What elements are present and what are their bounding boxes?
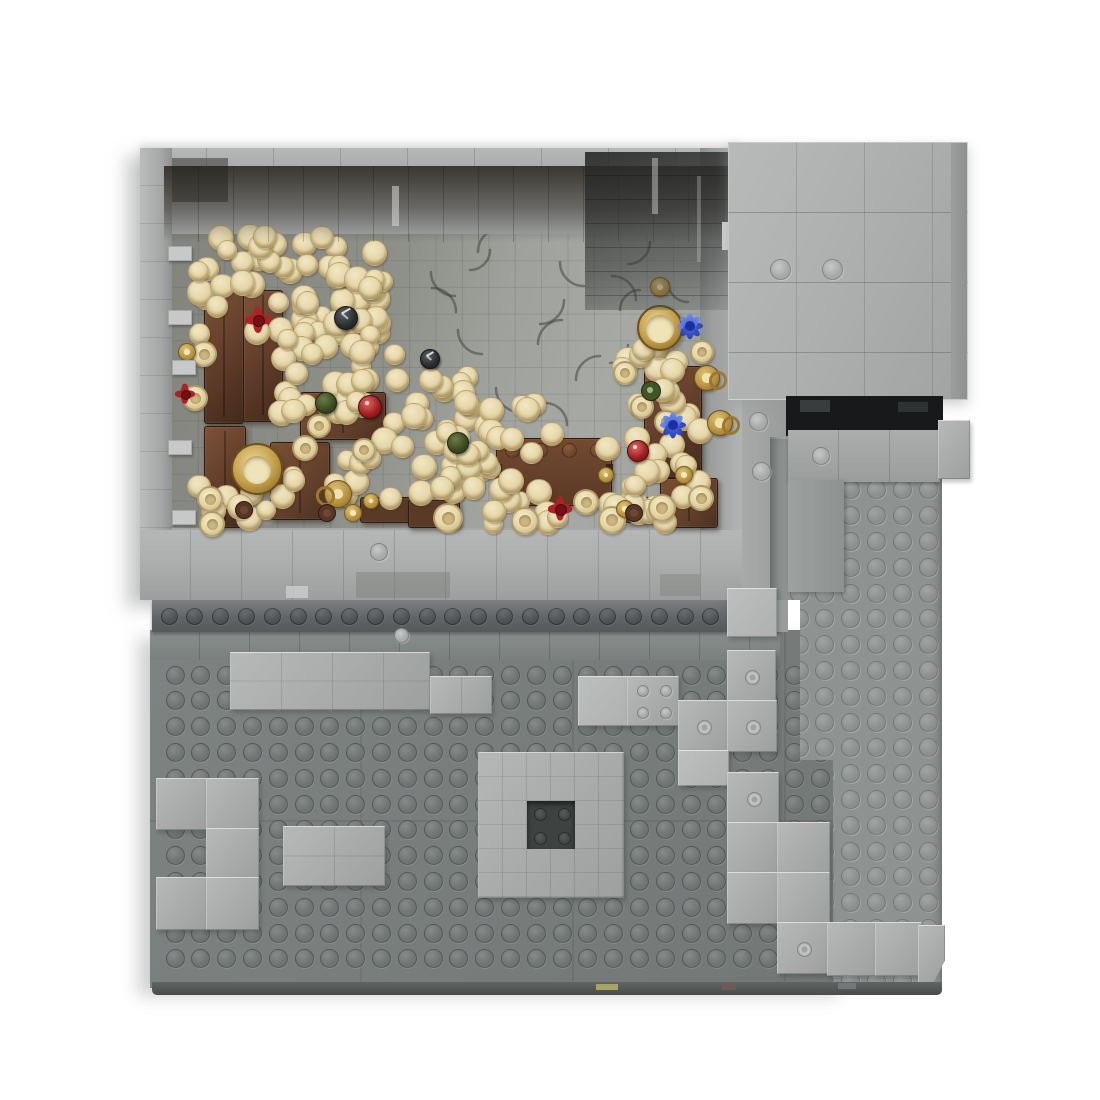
platform-stud [867, 764, 886, 783]
blue-gem [677, 313, 703, 339]
row-stud [315, 608, 332, 625]
platform-stud [867, 790, 886, 809]
jumper-stud [697, 720, 712, 735]
baseplate-stud [320, 924, 339, 943]
tan-goblet [648, 494, 676, 522]
light-gray-slab [283, 826, 385, 886]
platform-stud [893, 842, 912, 861]
baseplate-stud [269, 949, 288, 968]
baseplate-stud [553, 691, 572, 710]
platform-stud [815, 687, 834, 706]
platform-stud [919, 584, 938, 603]
baseplate-stud [682, 949, 701, 968]
baseplate-stud [553, 666, 572, 685]
black-crystal [334, 306, 358, 330]
light-gray-brick [206, 877, 259, 930]
baseplate-stud [398, 898, 417, 917]
light-gray-slab [430, 676, 492, 714]
row-stud [599, 608, 616, 625]
gold-coin [498, 468, 524, 494]
opening [323, 509, 332, 518]
baseplate-stud [320, 769, 339, 788]
goblet-bowl [199, 349, 210, 360]
row-stud [393, 608, 410, 625]
gold-coin [296, 254, 318, 276]
tan-goblet [433, 503, 463, 533]
baseplate-stud [527, 898, 546, 917]
blue-gem [660, 412, 686, 438]
green-bottle [641, 381, 661, 401]
baseplate-stud [424, 769, 443, 788]
gold-chalice [231, 443, 283, 495]
black-crystal [420, 349, 440, 369]
baseplate-stud [372, 924, 391, 943]
doorway-lintel [898, 402, 928, 412]
baseplate-stud [243, 743, 262, 762]
hole-stud [558, 808, 571, 821]
platform-stud [815, 738, 834, 757]
baseplate-stud [398, 743, 417, 762]
platform-stud [919, 738, 938, 757]
gold-coin [206, 295, 229, 318]
plate-stud [637, 685, 649, 697]
gold-coin [296, 291, 320, 315]
platform-stud [867, 687, 886, 706]
gold-coin [482, 500, 505, 523]
light-gray-brick [938, 420, 970, 479]
light-gray-jumper [727, 650, 776, 702]
platform-stud [867, 893, 886, 912]
platform-stud [815, 635, 834, 654]
baseplate-stud [166, 949, 185, 968]
platform-stud [893, 661, 912, 680]
platform-stud [919, 532, 938, 551]
sparkle [633, 445, 637, 449]
baseplate-stud [295, 949, 314, 968]
tiled-roof-block [728, 142, 968, 400]
goblet-bowl [314, 421, 324, 431]
row-stud [651, 608, 668, 625]
platform-stud [919, 842, 938, 861]
hole-stud [558, 832, 571, 845]
baseplate-stud [372, 795, 391, 814]
baseplate-stud [682, 924, 701, 943]
wall-ledge [172, 510, 196, 525]
jumper-stud [746, 720, 761, 735]
baseplate-stud [295, 743, 314, 762]
wall-stud [394, 628, 409, 643]
baseplate-stud [707, 924, 726, 943]
light-gray-brick [156, 778, 208, 830]
tan-goblet [690, 340, 714, 364]
baseplate-stud [269, 898, 288, 917]
baseplate-bottom-edge [152, 982, 942, 995]
baseplate-stud [398, 949, 417, 968]
plate-stud [637, 707, 649, 719]
baseplate-stud [656, 898, 675, 917]
goblet-bowl [300, 443, 311, 454]
baseplate-stud [372, 898, 391, 917]
platform-stud [867, 506, 886, 525]
baseplate-stud [682, 846, 701, 865]
platform-stud [893, 790, 912, 809]
plate-stud [660, 685, 672, 697]
platform-stud [919, 867, 938, 886]
brown-mug [235, 501, 253, 519]
wall-stud [812, 447, 830, 465]
baseplate-stud [346, 898, 365, 917]
tan-goblet [613, 361, 637, 385]
baseplate-stud [553, 949, 572, 968]
baseplate-stud [269, 717, 288, 736]
gold-bottle [178, 343, 196, 361]
light-gray-jumper [727, 700, 777, 752]
baseplate-stud [578, 898, 597, 917]
baseplate-stud [527, 666, 546, 685]
platform-stud [841, 842, 860, 861]
baseplate-stud [707, 795, 726, 814]
baseplate-stud [811, 769, 830, 788]
tan-goblet [352, 438, 376, 462]
gold-coin [277, 329, 298, 350]
baseplate-stud [346, 769, 365, 788]
baseplate-stud [398, 846, 417, 865]
wall-stud [749, 412, 768, 431]
baseplate-stud [630, 924, 649, 943]
cap [184, 349, 190, 355]
platform-stud [919, 506, 938, 525]
baseplate-stud [372, 743, 391, 762]
baseplate-stud [372, 769, 391, 788]
cap [350, 510, 356, 516]
platform-stud [841, 635, 860, 654]
baseplate-stud [449, 898, 468, 917]
baseplate-stud [630, 898, 649, 917]
platform-stud [841, 893, 860, 912]
row-stud [290, 608, 307, 625]
platform-stud [815, 609, 834, 628]
platform-stud [919, 816, 938, 835]
platform-stud [919, 893, 938, 912]
cap [657, 284, 663, 290]
baseplate-stud [295, 795, 314, 814]
goblet-bowl [606, 514, 618, 526]
goblet-bowl [519, 515, 531, 527]
light-gray-slab [230, 652, 430, 710]
baseplate-stud [553, 898, 572, 917]
red-gem [627, 440, 649, 462]
wall-stud [370, 543, 388, 561]
baseplate-stud [295, 898, 314, 917]
light-gray-tile [578, 676, 629, 726]
wall-tile [286, 586, 308, 598]
inner-bowl [243, 456, 271, 484]
flower-center [555, 504, 567, 516]
sparkle [426, 355, 432, 361]
baseplate-stud [295, 924, 314, 943]
baseplate-stud [682, 795, 701, 814]
lego-moc-render: Top-down 3D render of a gray LEGO MOC st… [0, 0, 1100, 1100]
tan-goblet [199, 511, 225, 537]
row-stud [264, 608, 281, 625]
platform-stud [893, 584, 912, 603]
baseplate-stud [372, 717, 391, 736]
baseplate-stud [527, 924, 546, 943]
baseplate-stud [217, 743, 236, 762]
wall-ledge [168, 440, 192, 455]
platform-stud [919, 661, 938, 680]
light-gray-brick [156, 877, 208, 930]
platform-stud [919, 713, 938, 732]
platform-stud [919, 558, 938, 577]
platform-stud [893, 532, 912, 551]
glass-sliver [652, 158, 658, 214]
baseplate-stud [424, 820, 443, 839]
gold-bottle [598, 467, 614, 483]
baseplate-stud [269, 924, 288, 943]
platform-stud [893, 687, 912, 706]
baseplate-stud [501, 717, 520, 736]
baseplate-stud [527, 949, 546, 968]
row-stud [186, 608, 203, 625]
baseplate-stud [604, 924, 623, 943]
brick-ring [478, 752, 624, 898]
baseplate-stud [269, 795, 288, 814]
baseplate-stud [269, 743, 288, 762]
baseplate-stud [295, 769, 314, 788]
baseplate-stud [166, 691, 185, 710]
platform-stud [815, 661, 834, 680]
jumper-stud [747, 792, 762, 807]
platform-stud [867, 532, 886, 551]
jumper-stud [797, 942, 812, 957]
gold-coin [500, 427, 524, 451]
gold-bottle [675, 466, 693, 484]
baseplate-stud [733, 924, 752, 943]
hole-stud [534, 808, 547, 821]
red-gem [358, 395, 382, 419]
gold-coin [362, 240, 387, 265]
baseplate-stud [269, 769, 288, 788]
gold-coin [401, 403, 426, 428]
baseplate-stud [707, 666, 726, 685]
baseplate-stud [424, 872, 443, 891]
red-flower [245, 307, 271, 333]
platform-stud [919, 480, 938, 499]
baseplate-stud [166, 717, 185, 736]
platform-stud [841, 713, 860, 732]
goblet-bowl [637, 402, 647, 412]
baseplate-stud [785, 769, 804, 788]
row-stud [341, 608, 358, 625]
platform-wall-vertical [788, 480, 844, 592]
platform-stud [867, 816, 886, 835]
sparkle [365, 401, 369, 405]
row-stud [470, 608, 487, 625]
platform-stud [893, 764, 912, 783]
baseplate-stud [682, 820, 701, 839]
glass-sliver [697, 176, 701, 262]
platform-stud [841, 687, 860, 706]
jumper-stud [745, 670, 760, 685]
baseplate-stud [656, 795, 675, 814]
goblet-bowl [656, 502, 668, 514]
tan-goblet [573, 489, 599, 515]
row-stud [444, 608, 461, 625]
platform-stud [867, 842, 886, 861]
baseplate-stud [759, 924, 778, 943]
platform-stud [893, 713, 912, 732]
corner-shadow [172, 158, 228, 202]
sparkle [341, 313, 348, 319]
baseplate-stud [656, 924, 675, 943]
platform-stud [790, 609, 809, 628]
gold-coin [624, 475, 645, 496]
platform-stud [919, 764, 938, 783]
baseplate-stud [424, 846, 443, 865]
platform-stud [841, 816, 860, 835]
gold-coin [188, 261, 209, 282]
row-stud [212, 608, 229, 625]
gold-coin [253, 225, 277, 249]
baseplate-stud [630, 846, 649, 865]
platform-stud [893, 506, 912, 525]
baseplate-stud [424, 949, 443, 968]
platform-wall-horizontal [788, 430, 940, 482]
light-gray-brick [827, 922, 877, 976]
platform-stud [841, 790, 860, 809]
cap [604, 473, 609, 478]
light-gray-brick [777, 872, 830, 924]
gold-jug [694, 365, 720, 391]
baseplate-stud [424, 795, 443, 814]
row-stud [702, 608, 719, 625]
baseplate-stud [578, 924, 597, 943]
baseplate-stud [527, 717, 546, 736]
platform-stud [893, 816, 912, 835]
wall-ledge [168, 246, 192, 261]
scene [0, 0, 1100, 1100]
baseplate-stud [424, 717, 443, 736]
baseplate-stud [166, 743, 185, 762]
baseplate-stud [295, 717, 314, 736]
gold-bottle [344, 504, 362, 522]
red-flower [175, 384, 195, 404]
baseplate-stud [398, 872, 417, 891]
goblet-bowl [697, 347, 707, 357]
gold-coin [515, 397, 540, 422]
baseplate-stud [191, 666, 210, 685]
baseplate-stud [424, 743, 443, 762]
goblet-bowl [205, 494, 216, 505]
baseplate-stud [630, 872, 649, 891]
baseplate-stud [398, 769, 417, 788]
row-stud [522, 608, 539, 625]
baseplate-stud [398, 820, 417, 839]
gold-coin [430, 476, 454, 500]
flower-center [181, 390, 191, 400]
row-stud [238, 608, 255, 625]
platform-stud [867, 558, 886, 577]
platform-stud [867, 480, 886, 499]
goblet-bowl [359, 445, 369, 455]
baseplate-stud [553, 717, 572, 736]
baseplate-stud [501, 666, 520, 685]
baseplate-stud [346, 924, 365, 943]
platform-stud [841, 738, 860, 757]
platform-stud [919, 687, 938, 706]
hole-stud [534, 832, 547, 845]
cap [369, 499, 374, 504]
gold-coin [351, 369, 375, 393]
baseplate-stud [346, 795, 365, 814]
platform-stud [867, 635, 886, 654]
light-gray-brick [727, 872, 779, 924]
flower-center [253, 315, 266, 328]
gold-coin [391, 435, 414, 458]
gold-coin [358, 276, 382, 300]
cap [647, 387, 653, 393]
tan-goblet [292, 435, 318, 461]
platform-stud [893, 558, 912, 577]
baseplate-stud [630, 743, 649, 762]
light-gray-brick [206, 778, 259, 830]
ring-hole [527, 801, 575, 849]
row-stud [625, 608, 642, 625]
wall-stud [752, 462, 771, 481]
platform-stud [893, 609, 912, 628]
goblet-bowl [620, 368, 630, 378]
baseplate-stud [656, 872, 675, 891]
gold-coin [520, 442, 543, 465]
baseplate-stud [501, 924, 520, 943]
light-gray-jumper [678, 700, 729, 752]
gold-coin [283, 469, 305, 491]
baseplate-stud [656, 949, 675, 968]
goblet-bowl [442, 512, 455, 525]
gold-coin [379, 487, 402, 510]
baseplate-stud [320, 795, 339, 814]
platform-stud [919, 790, 938, 809]
gold-coin [285, 362, 308, 385]
wall-stud [822, 259, 843, 280]
brown-mug [318, 504, 336, 522]
green-gem [447, 432, 469, 454]
platform-stud [867, 867, 886, 886]
baseplate-stud [166, 846, 185, 865]
light-gray-brick [727, 822, 779, 874]
baseplate-stud [682, 666, 701, 685]
baseplate-stud [682, 898, 701, 917]
edge-fleck [722, 984, 736, 990]
doorway-lintel [800, 400, 830, 412]
baseplate-stud [166, 666, 185, 685]
baseplate-stud [243, 717, 262, 736]
brown-mug [625, 504, 643, 522]
wall-texture [660, 574, 700, 596]
baseplate-stud [449, 769, 468, 788]
baseplate-stud [449, 795, 468, 814]
light-gray-jumper [727, 772, 779, 824]
opening [630, 509, 639, 518]
wall-texture [356, 572, 450, 598]
baseplate-stud [475, 924, 494, 943]
platform-stud [893, 635, 912, 654]
light-gray-jumper [777, 922, 829, 974]
row-stud [496, 608, 513, 625]
roof-block-side-face [951, 143, 967, 399]
platform-stud [919, 609, 938, 628]
